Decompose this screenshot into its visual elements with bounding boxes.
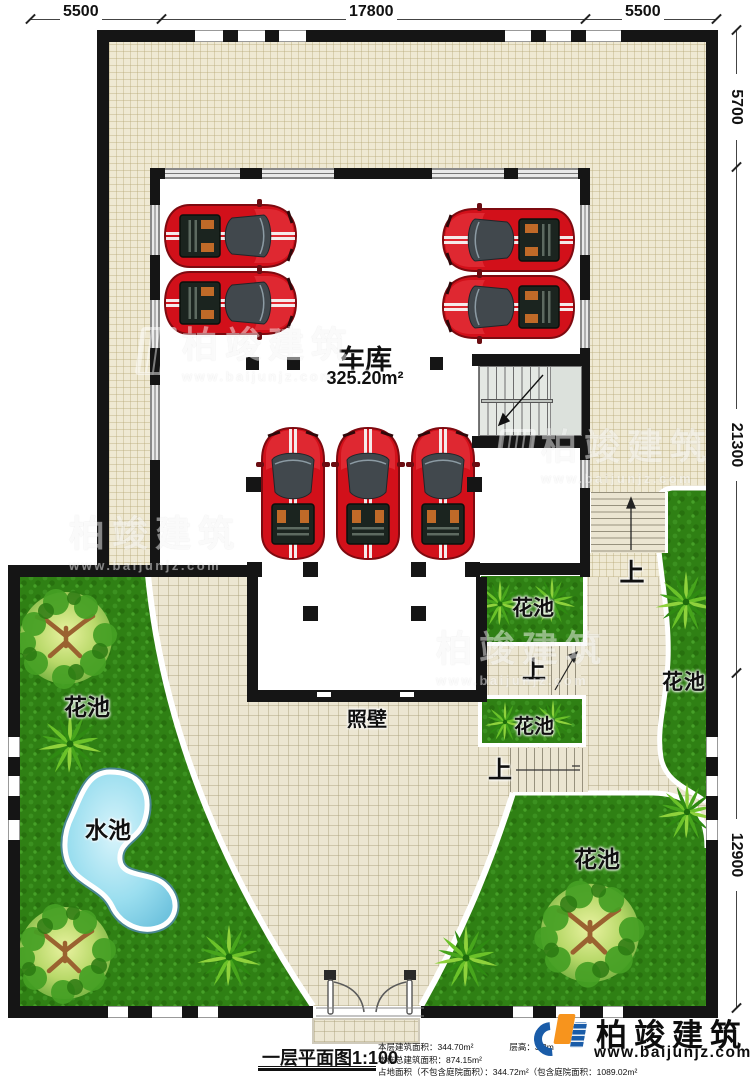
floor-area-text: 本层建筑面积：344.70m² <box>378 1042 473 1052</box>
garden-step-wall <box>8 565 153 577</box>
sports-car <box>331 428 405 559</box>
column <box>287 357 300 370</box>
garage-wall-north <box>150 168 590 179</box>
stair-wall-bottom <box>472 436 590 448</box>
column <box>467 477 482 492</box>
column <box>465 562 480 577</box>
outer-wall-top <box>97 30 718 42</box>
outer-wall-left-lower <box>8 565 20 1013</box>
flower-pool-label: 花池 <box>658 666 710 696</box>
flower-pool-label: 花池 <box>42 688 132 722</box>
dim-top-center: 17800 <box>346 3 397 21</box>
column <box>246 357 259 370</box>
up-label: 上 <box>612 553 652 589</box>
sports-car <box>256 428 330 559</box>
up-label: 上 <box>480 750 520 785</box>
flower-pool-label: 花池 <box>552 840 642 874</box>
brand-website: www.baijunjz.com <box>594 1044 750 1062</box>
forecourt-wall-east <box>476 577 487 702</box>
sports-car <box>406 428 480 559</box>
dim-right-upper: 5700 <box>727 74 745 140</box>
garage-wall-south-left <box>150 565 255 577</box>
sports-car <box>165 199 296 273</box>
column <box>303 606 318 621</box>
column <box>411 562 426 577</box>
water-pool-label: 水池 <box>68 811 148 845</box>
floor-plan-canvas: 车库 325.20m² 照壁 花池 花池 花池 花池 花池 水池 上 上 上 5… <box>0 0 750 1080</box>
screen-wall <box>247 690 487 702</box>
screen-wall-label: 照壁 <box>307 703 427 732</box>
column <box>411 606 426 621</box>
dim-right-lower: 12900 <box>727 819 745 891</box>
column <box>246 477 261 492</box>
column <box>430 357 443 370</box>
outer-wall-left-upper <box>97 30 109 577</box>
up-label: 上 <box>514 650 554 685</box>
east-entry-stair <box>588 492 668 553</box>
stair-wall-top <box>472 354 590 366</box>
outer-wall-right <box>706 30 718 1013</box>
dim-top-left: 5500 <box>60 3 102 21</box>
sports-car <box>443 270 574 344</box>
outer-wall-bottom-left <box>8 1006 313 1018</box>
plan-title-underline <box>258 1066 376 1071</box>
column <box>247 562 262 577</box>
sports-car <box>165 266 296 340</box>
flower-pool-label: 花池 <box>495 592 571 622</box>
dim-top-right: 5500 <box>622 3 664 21</box>
garage-wall-west <box>150 168 160 577</box>
small-stair-upper <box>551 646 581 695</box>
column <box>303 562 318 577</box>
forecourt-wall-west <box>247 577 258 702</box>
flower-pool-label: 花池 <box>498 710 570 739</box>
garage-area-label: 325.20m² <box>300 368 430 389</box>
land-area-text: 占地面积（不包含庭院面积）：344.72m²（包含庭院面积：1089.02m² <box>378 1066 637 1079</box>
small-stair-lower <box>510 748 588 792</box>
garage-wall-south-right <box>470 563 590 575</box>
dim-right-middle: 21300 <box>727 409 745 481</box>
brand-logo-icon <box>534 1012 590 1064</box>
sports-car <box>443 203 574 277</box>
interior-staircase <box>478 366 582 436</box>
